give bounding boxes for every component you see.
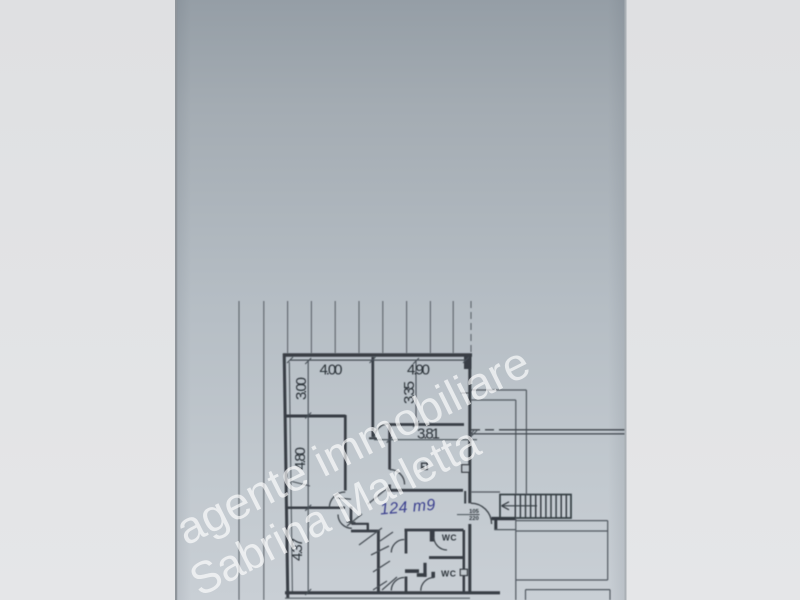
svg-text:WC: WC	[442, 533, 457, 543]
svg-text:WC: WC	[441, 568, 456, 578]
svg-text:4.00: 4.00	[320, 362, 343, 379]
svg-text:4.90: 4.90	[407, 362, 430, 379]
svg-text:220: 220	[469, 516, 479, 522]
svg-text:3.00: 3.00	[293, 377, 310, 400]
